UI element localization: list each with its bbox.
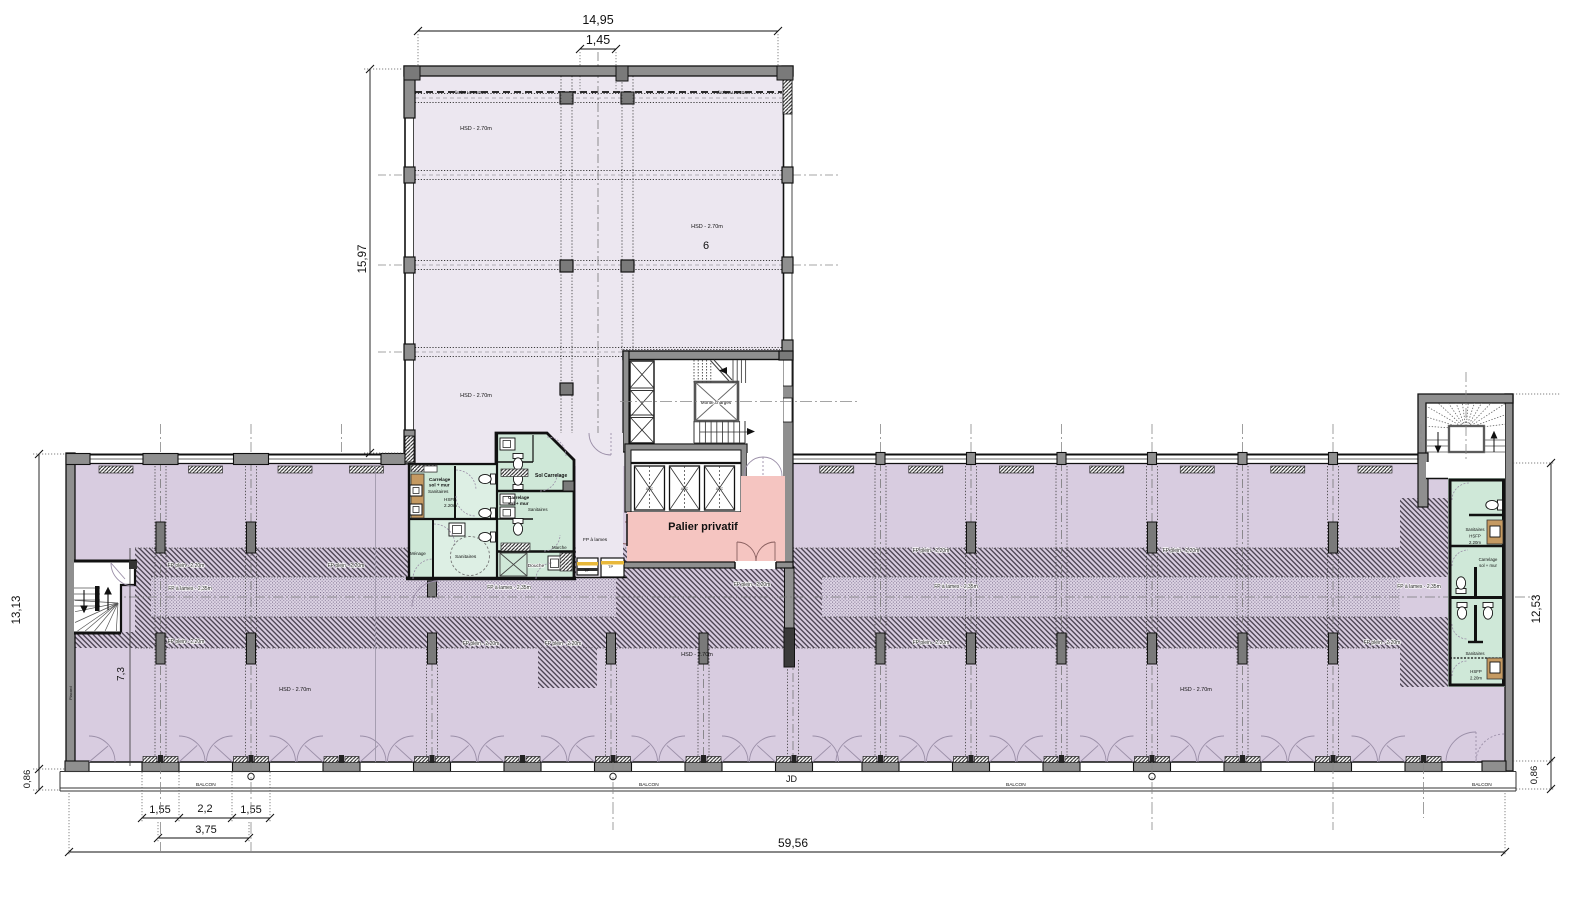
svg-text:Carrelage: Carrelage [1479,557,1498,562]
svg-text:FP plein - 2,20m: FP plein - 2,20m [168,639,205,645]
svg-text:FP plein - 2,20m: FP plein - 2,20m [734,582,771,588]
svg-text:Sanitaires: Sanitaires [455,554,477,560]
svg-text:sol + mur: sol + mur [429,483,450,488]
svg-text:2.20m: 2.20m [1469,540,1481,545]
svg-text:limite H. 1.80m: limite H. 1.80m [455,90,485,95]
svg-text:Marche: Marche [552,545,567,550]
svg-text:FP à lames: FP à lames [583,537,608,543]
svg-text:ASC: ASC [681,487,689,491]
svg-text:HSD - 2.70m: HSD - 2.70m [460,393,492,399]
svg-text:FP à lames - 2,35m: FP à lames - 2,35m [1397,584,1441,590]
svg-text:Douche: Douche [528,563,545,569]
svg-text:14,95: 14,95 [582,13,613,27]
svg-text:FP plein - 2,20m: FP plein - 2,20m [168,563,205,569]
svg-text:Carrelage: Carrelage [429,477,451,482]
svg-text:HSD - 2.70m: HSD - 2.70m [681,652,713,658]
svg-text:Palier privatif: Palier privatif [668,521,738,533]
svg-text:12,53: 12,53 [1531,595,1543,624]
svg-text:Placard: Placard [68,686,73,700]
svg-text:6: 6 [703,240,709,252]
svg-text:FP plein - 2,20m: FP plein - 2,20m [913,548,950,554]
svg-text:FP plein - 2,20m: FP plein - 2,20m [463,641,500,647]
svg-text:13,13: 13,13 [11,596,23,625]
svg-text:0,86: 0,86 [22,770,33,789]
svg-text:FP plein - 2,20m: FP plein - 2,20m [1163,548,1200,554]
svg-text:2.20m: 2.20m [1470,676,1482,681]
svg-text:15,97: 15,97 [357,245,369,274]
svg-text:FP à lames - 2,35m: FP à lames - 2,35m [934,584,978,590]
svg-text:HSD - 2.70m: HSD - 2.70m [460,126,492,132]
svg-text:TP: TP [608,564,613,569]
svg-text:FP à lames - 2,35m: FP à lames - 2,35m [168,586,212,592]
svg-text:HSD - 2.70m: HSD - 2.70m [691,224,723,230]
svg-text:BALCON: BALCON [639,782,659,788]
svg-text:Carrelage: Carrelage [508,495,530,500]
svg-text:ASC: ASC [646,487,654,491]
svg-text:FP plein - 2,20m: FP plein - 2,20m [328,563,365,569]
svg-text:HSD - 2.70m: HSD - 2.70m [1180,687,1212,693]
svg-text:1,55: 1,55 [149,804,170,816]
svg-text:1,45: 1,45 [586,33,610,47]
svg-text:BALCON: BALCON [196,782,216,788]
svg-text:Sol Carrelage: Sol Carrelage [535,473,567,479]
svg-text:Sanitaires: Sanitaires [1465,527,1484,532]
svg-text:BALCON: BALCON [1472,782,1492,788]
svg-text:Monte charges: Monte charges [701,400,732,405]
svg-text:limite H. 1.80m: limite H. 1.80m [718,90,748,95]
svg-text:JD: JD [786,774,798,784]
svg-text:TP: TP [584,568,589,573]
svg-text:FP plein - 2,20m: FP plein - 2,20m [1364,640,1401,646]
svg-text:ASC: ASC [716,487,724,491]
svg-text:BALCON: BALCON [1006,782,1026,788]
svg-text:Sanitaires: Sanitaires [1465,651,1484,656]
svg-text:Sanitaires: Sanitaires [428,489,449,494]
svg-text:7,3: 7,3 [116,667,127,681]
svg-text:FP plein - 2,20m: FP plein - 2,20m [545,641,582,647]
svg-text:Sanitaires: Sanitaires [528,507,548,512]
svg-text:HSD - 2.70m: HSD - 2.70m [279,687,311,693]
svg-text:0,86: 0,86 [1529,766,1540,785]
svg-text:HSFP: HSFP [1470,669,1482,674]
svg-text:HSFP: HSFP [1469,534,1481,539]
svg-text:2.20m: 2.20m [444,503,457,508]
svg-text:3,75: 3,75 [195,824,216,836]
svg-text:Ménage: Ménage [410,551,426,556]
svg-text:FP plein - 2,20m: FP plein - 2,20m [913,640,950,646]
svg-text:FP à lames - 2,35m: FP à lames - 2,35m [487,585,531,591]
svg-text:sol + mur: sol + mur [508,501,529,506]
svg-text:sol + mur: sol + mur [1479,563,1497,568]
svg-text:HSFP: HSFP [444,497,456,502]
svg-text:2,2: 2,2 [197,803,212,815]
svg-text:59,56: 59,56 [778,836,808,850]
